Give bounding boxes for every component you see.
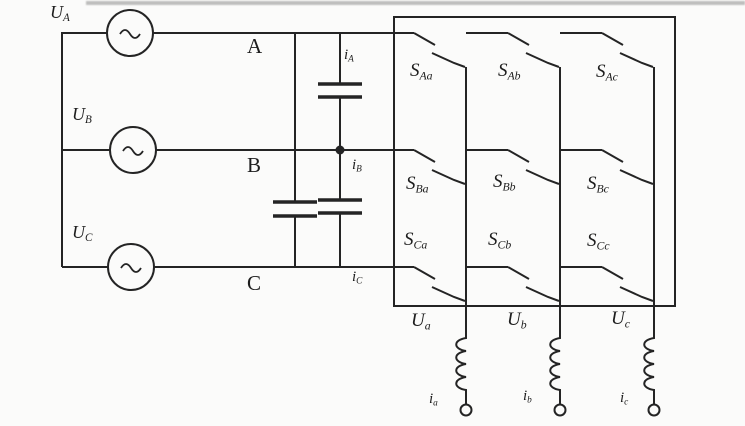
junction-dot-b: [336, 146, 345, 155]
label-main: S: [488, 229, 498, 250]
label-sub: b: [521, 318, 527, 331]
input-current-label-ic: iC: [352, 270, 362, 287]
label-sub: A: [63, 12, 70, 24]
label-main: U: [72, 104, 85, 124]
label-sub: Cb: [498, 238, 512, 251]
label-main: U: [72, 222, 85, 242]
switch-label-sab: SAb: [498, 61, 521, 82]
capacitor-plates: [318, 84, 362, 97]
sine-icon: [121, 264, 141, 272]
output-voltage-label-ub: Ub: [507, 310, 527, 331]
input-current-label-ib: iB: [352, 158, 362, 175]
label-sub: Cc: [597, 239, 610, 252]
label-sub: b: [527, 396, 532, 406]
label-main: U: [507, 309, 521, 330]
label-main: S: [410, 60, 420, 81]
ac-source-ua: [107, 10, 153, 56]
label-sub: B: [85, 114, 92, 126]
switch-label-sba: SBa: [406, 174, 429, 195]
output-current-label-ib: ib: [523, 389, 532, 406]
label-main: S: [498, 60, 508, 81]
output-terminal-a: [461, 405, 472, 416]
switch-matrix-box: [394, 17, 675, 306]
input-current-label-ia: iA: [344, 48, 354, 65]
switch-label-sac: SAc: [596, 62, 618, 83]
label-main: S: [587, 230, 597, 251]
label-main: B: [247, 153, 261, 177]
switch-label-sbc: SBc: [587, 174, 609, 195]
label-main: C: [247, 271, 261, 295]
switch-symbol-sbb: [508, 150, 559, 184]
label-main: S: [404, 229, 414, 250]
label-main: S: [596, 61, 606, 82]
output-voltage-label-ua: Ua: [411, 311, 431, 332]
label-sub: Ca: [414, 238, 428, 251]
ac-source-uc: [108, 244, 154, 290]
label-main: U: [611, 308, 625, 329]
label-sub: B: [356, 165, 362, 175]
label-sub: C: [85, 232, 92, 244]
output-column-a: [456, 67, 471, 416]
source-label-ua: UA: [50, 3, 70, 24]
output-column-c: [644, 67, 659, 416]
ac-source-ub: [110, 127, 156, 173]
inductor-a: [456, 67, 466, 405]
label-sub: Aa: [420, 69, 433, 82]
output-voltage-label-uc: Uc: [611, 309, 630, 330]
output-column-b: [550, 67, 565, 416]
phase-label-b: B: [247, 155, 261, 176]
circuit-canvas: [0, 0, 745, 426]
sine-icon: [120, 30, 140, 38]
switch-label-sca: SCa: [404, 230, 427, 251]
switch-label-scb: SCb: [488, 230, 511, 251]
output-current-label-ia: ia: [429, 392, 438, 409]
label-main: S: [493, 171, 503, 192]
capacitor-plates: [273, 202, 317, 216]
capacitor-plates: [318, 200, 362, 213]
source-label-uc: UC: [72, 223, 92, 244]
label-sub: C: [356, 277, 362, 287]
sine-icon: [123, 147, 143, 155]
label-main: S: [406, 173, 416, 194]
inductor-c: [644, 67, 654, 405]
label-sub: c: [625, 317, 630, 330]
label-main: U: [50, 2, 63, 22]
switch-label-scc: SCc: [587, 231, 610, 252]
label-sub: Ba: [416, 182, 429, 195]
switch-label-sbb: SBb: [493, 172, 516, 193]
label-main: S: [587, 173, 597, 194]
switch-label-saa: SAa: [410, 61, 433, 82]
label-sub: Ab: [508, 69, 521, 82]
inductor-b: [550, 67, 560, 405]
switch-symbol-scc: [602, 267, 653, 301]
label-sub: c: [624, 398, 628, 408]
filter-capacitor-ab: [318, 33, 362, 150]
label-sub: A: [348, 55, 354, 65]
label-main: A: [247, 34, 262, 58]
phase-label-c: C: [247, 273, 261, 294]
switch-symbol-scb: [508, 267, 559, 301]
output-terminal-c: [649, 405, 660, 416]
label-sub: Bc: [597, 182, 609, 195]
switch-symbol-sbc: [602, 150, 653, 184]
source-label-ub: UB: [72, 105, 92, 126]
label-main: U: [411, 310, 425, 331]
output-current-label-ic: ic: [620, 391, 628, 408]
output-terminal-b: [555, 405, 566, 416]
label-sub: Bb: [503, 180, 516, 193]
phase-label-a: A: [247, 36, 262, 57]
switch-symbol-sca: [414, 267, 465, 301]
circuit-diagram: UA UB UC A B C iA iB iC SAa SAb SAc SBa …: [0, 0, 745, 426]
label-sub: a: [433, 399, 438, 409]
label-sub: Ac: [606, 70, 618, 83]
label-sub: a: [425, 319, 431, 332]
